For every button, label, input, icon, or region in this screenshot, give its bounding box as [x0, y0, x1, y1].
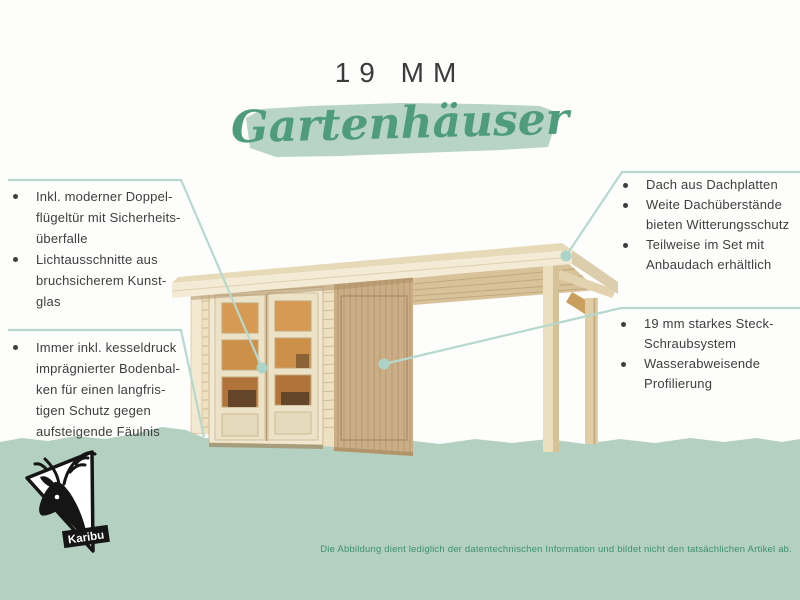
feature-list-right-bottom: 19 mm starkes Steck- Schraubsystem Wasse…: [618, 314, 774, 394]
feature-text: Wasserabweisende Profilierung: [644, 354, 760, 394]
feature-item: Wasserabweisende Profilierung: [618, 354, 774, 394]
interior-shadow: [228, 390, 256, 407]
feature-item: 19 mm starkes Steck- Schraubsystem: [618, 314, 774, 354]
feature-item: Teilweise im Set mit Anbaudach erhältlic…: [620, 235, 789, 275]
interior-shadow: [281, 392, 309, 405]
door-bottom-panel: [275, 412, 311, 434]
canopy-front-post: [543, 263, 559, 452]
feature-list-left-bottom: Immer inkl. kesseldruck imprägnierter Bo…: [10, 337, 180, 442]
bullet-icon: [13, 257, 18, 262]
feature-text: Dach aus Dachplatten: [646, 175, 778, 195]
bullet-icon: [13, 194, 18, 199]
door-glass-pane: [275, 301, 311, 331]
callout-dot-wall: [379, 359, 390, 370]
feature-text: Teilweise im Set mit Anbaudach erhältlic…: [646, 235, 771, 275]
door-bottom-panel: [222, 414, 258, 436]
feature-list-left-top: Inkl. moderner Doppel- flügeltür mit Sic…: [10, 186, 181, 312]
feature-text: Lichtausschnitte aus bruchsicherem Kunst…: [36, 249, 166, 312]
feature-list-right-top: Dach aus Dachplatten Weite Dachüberständ…: [620, 175, 789, 275]
feature-text: 19 mm starkes Steck- Schraubsystem: [644, 314, 774, 354]
callout-dot-door: [257, 363, 268, 374]
feature-text: Weite Dachüberstände bieten Witterungssc…: [646, 195, 789, 235]
callout-dot-roof: [561, 251, 572, 262]
feature-item: Weite Dachüberstände bieten Witterungssc…: [620, 195, 789, 235]
canopy-rear-post: [585, 298, 598, 444]
feature-item: Dach aus Dachplatten: [620, 175, 789, 195]
interior-shadow: [296, 354, 309, 368]
infographic-canvas: Karibu 19 MM Gartenhäuser Inkl. moderner…: [0, 0, 800, 600]
feature-text: Immer inkl. kesseldruck imprägnierter Bo…: [36, 337, 180, 442]
bullet-icon: [621, 322, 626, 327]
feature-item: Inkl. moderner Doppel- flügeltür mit Sic…: [10, 186, 181, 249]
footer-disclaimer: Die Abbildung dient lediglich der datent…: [320, 544, 792, 555]
bullet-icon: [623, 243, 628, 248]
feature-item: Immer inkl. kesseldruck imprägnierter Bo…: [10, 337, 180, 442]
deer-eye: [55, 495, 60, 500]
front-corner-trim: [191, 293, 202, 434]
bullet-icon: [623, 203, 628, 208]
page-title: 19 MM: [0, 57, 800, 89]
bullet-icon: [621, 362, 626, 367]
feature-item: Lichtausschnitte aus bruchsicherem Kunst…: [10, 249, 181, 312]
feature-text: Inkl. moderner Doppel- flügeltür mit Sic…: [36, 186, 181, 249]
bullet-icon: [623, 183, 628, 188]
bullet-icon: [13, 345, 18, 350]
garden-house-illustration: [172, 243, 618, 456]
